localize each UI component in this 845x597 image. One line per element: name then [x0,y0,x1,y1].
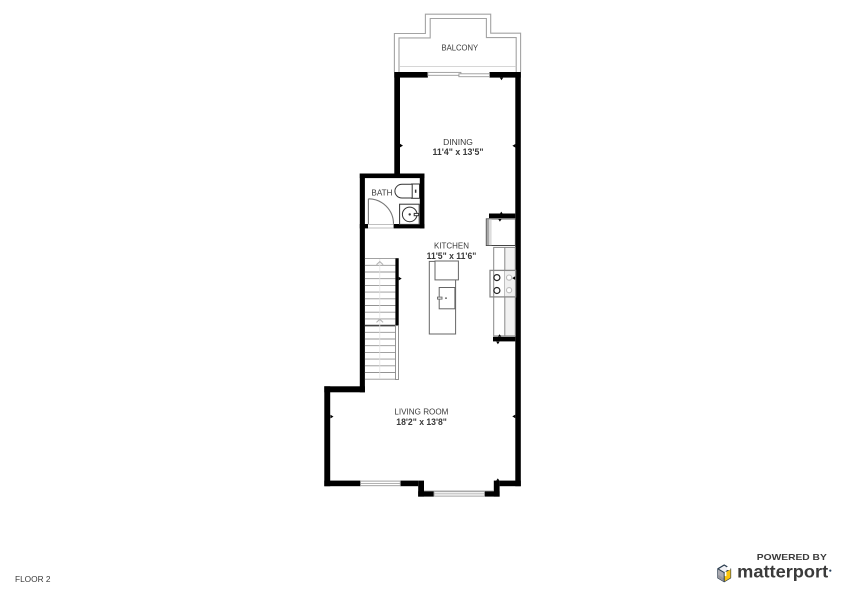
svg-text:KITCHEN: KITCHEN [434,241,469,251]
svg-text:FLOOR 2: FLOOR 2 [15,575,51,584]
svg-text:BALCONY: BALCONY [442,42,479,52]
svg-text:18'2" x 13'8": 18'2" x 13'8" [396,417,447,427]
svg-text:matterport: matterport [737,561,828,581]
svg-text:DINING: DINING [443,137,473,147]
svg-text:LIVING ROOM: LIVING ROOM [394,407,448,417]
svg-text:11'4" x 13'5": 11'4" x 13'5" [433,147,484,157]
svg-text:11'5" x 11'6": 11'5" x 11'6" [427,251,477,261]
svg-text:BATH: BATH [371,188,392,197]
